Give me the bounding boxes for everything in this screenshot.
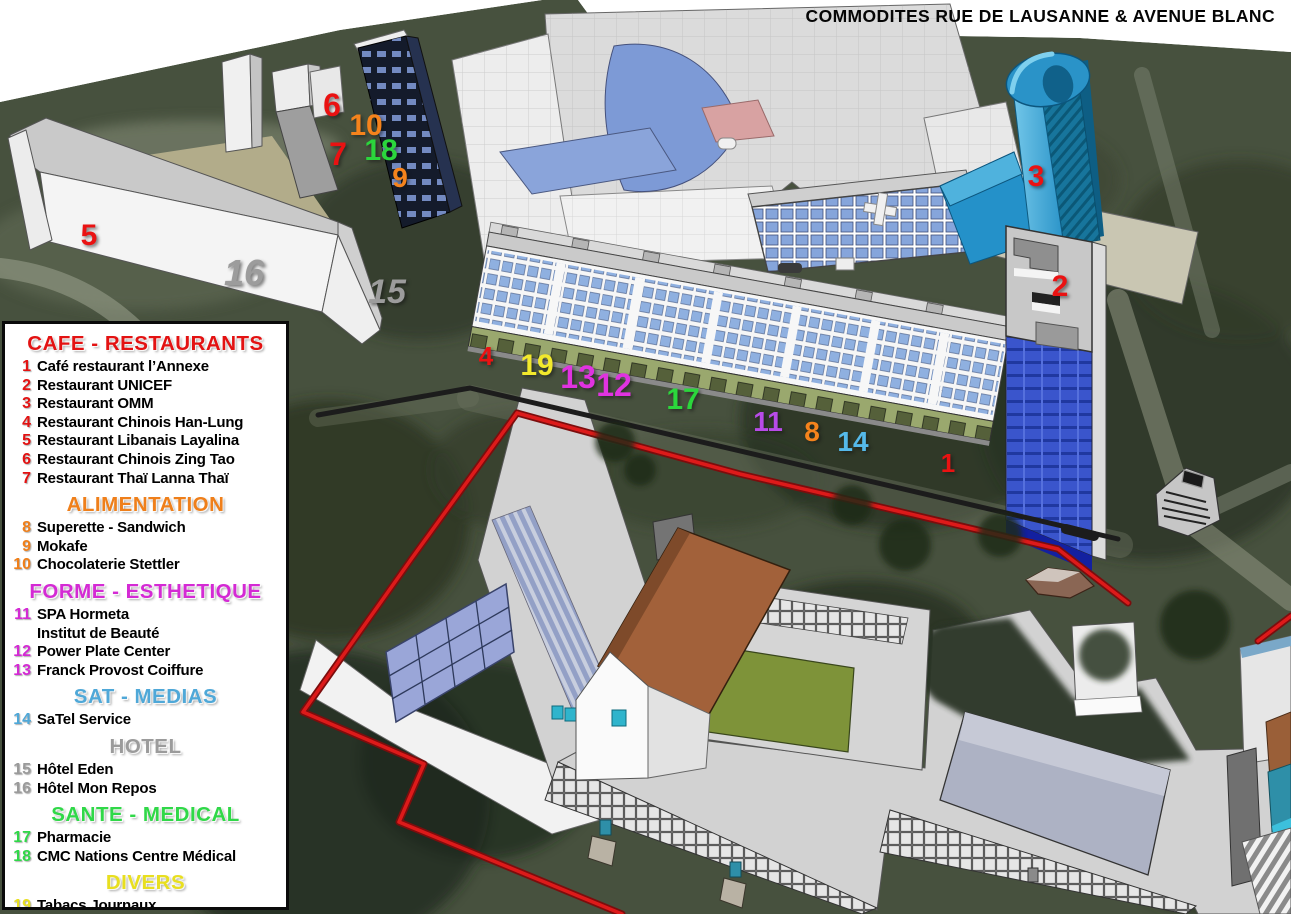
map-marker-9: 9	[392, 164, 408, 192]
legend-item-label: Power Plate Center	[37, 643, 170, 662]
legend-item-17: 17Pharmacie	[5, 829, 286, 848]
legend-item-2: 2Restaurant UNICEF	[5, 377, 286, 396]
legend-item-8: 8Superette - Sandwich	[5, 519, 286, 538]
legend-item-label: Tabacs Journaux	[37, 897, 156, 910]
map-marker-4: 4	[479, 343, 493, 369]
legend-item-number: 18	[5, 848, 31, 867]
legend-item-number: 2	[5, 377, 31, 396]
map-marker-5: 5	[81, 221, 98, 251]
page-title: COMMODITES RUE DE LAUSANNE & AVENUE BLAN…	[806, 6, 1275, 27]
legend-item-label: Restaurant OMM	[37, 395, 153, 414]
map-marker-1: 1	[941, 450, 955, 476]
legend-item-label: SPA Hormeta	[37, 606, 129, 625]
legend-header-5: SANTE - MEDICAL	[5, 803, 286, 827]
map-marker-14: 14	[837, 428, 868, 456]
legend-item-label: Restaurant Libanais Layalina	[37, 432, 239, 451]
legend-item-label: Chocolaterie Stettler	[37, 556, 180, 575]
legend-item-label: Restaurant Thaï Lanna Thaï	[37, 470, 229, 489]
map-marker-19: 19	[520, 351, 553, 381]
legend-item-5: 5Restaurant Libanais Layalina	[5, 432, 286, 451]
legend-item-18: 18CMC Nations Centre Médical	[5, 848, 286, 867]
legend-item-12: 12Power Plate Center	[5, 643, 286, 662]
legend-item-label: Hôtel Mon Repos	[37, 780, 157, 799]
legend-panel: CAFE - RESTAURANTS1Café restaurant l’Ann…	[2, 321, 289, 910]
legend-header-6: DIVERS	[5, 871, 286, 895]
legend-item-number: 12	[5, 643, 31, 662]
legend-item-11: 11SPA Hormeta	[5, 606, 286, 625]
legend-item-14: 14SaTel Service	[5, 711, 286, 730]
legend-item-number: 5	[5, 432, 31, 451]
legend-item-number: 8	[5, 519, 31, 538]
map-marker-16: 16	[224, 255, 264, 291]
legend-item-label: Hôtel Eden	[37, 761, 113, 780]
legend-item-number: 14	[5, 711, 31, 730]
legend-item-7: 7Restaurant Thaï Lanna Thaï	[5, 470, 286, 489]
map-marker-11: 11	[753, 408, 783, 436]
legend-item-number: 16	[5, 780, 31, 799]
legend-item-label: Café restaurant l’Annexe	[37, 358, 209, 377]
legend-item-label: CMC Nations Centre Médical	[37, 848, 236, 867]
legend-item-number: 17	[5, 829, 31, 848]
map-marker-8: 8	[804, 418, 820, 446]
legend-item-label: Mokafe	[37, 538, 87, 557]
legend-item-label: Pharmacie	[37, 829, 111, 848]
map-marker-2: 2	[1052, 272, 1069, 302]
map-marker-7: 7	[329, 138, 347, 170]
legend-header-1: ALIMENTATION	[5, 493, 286, 517]
legend-item-label: Restaurant UNICEF	[37, 377, 172, 396]
map-marker-13: 13	[560, 361, 596, 393]
legend-item-6: 6Restaurant Chinois Zing Tao	[5, 451, 286, 470]
map-marker-12: 12	[596, 369, 632, 401]
legend-item-1: 1Café restaurant l’Annexe	[5, 358, 286, 377]
legend-item-sublabel: Institut de Beauté	[37, 625, 159, 644]
legend-item-number: 13	[5, 662, 31, 681]
legend-item-3: 3Restaurant OMM	[5, 395, 286, 414]
legend-item-label: Restaurant Chinois Han-Lung	[37, 414, 243, 433]
legend-item-13: 13Franck Provost Coiffure	[5, 662, 286, 681]
house-door	[612, 710, 626, 726]
legend-item-number: 1	[5, 358, 31, 377]
legend-item-label: Restaurant Chinois Zing Tao	[37, 451, 235, 470]
legend-item-number-empty	[5, 625, 31, 644]
legend-item-number: 7	[5, 470, 31, 489]
legend-item-4: 4Restaurant Chinois Han-Lung	[5, 414, 286, 433]
legend-item-label: Superette - Sandwich	[37, 519, 186, 538]
map-marker-6: 6	[323, 89, 341, 121]
legend-item-number: 15	[5, 761, 31, 780]
legend-header-3: SAT - MEDIAS	[5, 685, 286, 709]
legend-item-16: 16Hôtel Mon Repos	[5, 780, 286, 799]
legend-item-10: 10Chocolaterie Stettler	[5, 556, 286, 575]
legend-item-number: 6	[5, 451, 31, 470]
legend-item-11-sub: Institut de Beauté	[5, 625, 286, 644]
legend-item-number: 4	[5, 414, 31, 433]
legend-item-number: 3	[5, 395, 31, 414]
legend-item-number: 10	[5, 556, 31, 575]
legend-item-number: 11	[5, 606, 31, 625]
legend-header-0: CAFE - RESTAURANTS	[5, 332, 286, 356]
legend-item-number: 19	[5, 897, 31, 910]
legend-item-19: 19Tabacs Journaux	[5, 897, 286, 910]
legend-item-label: SaTel Service	[37, 711, 131, 730]
legend-header-2: FORME - ESTHETIQUE	[5, 580, 286, 604]
commodites-map-screenshot: COMMODITES RUE DE LAUSANNE & AVENUE BLAN…	[0, 0, 1291, 914]
legend-sections: CAFE - RESTAURANTS1Café restaurant l’Ann…	[5, 332, 286, 910]
map-marker-18: 18	[364, 136, 397, 166]
legend-item-9: 9Mokafe	[5, 538, 286, 557]
legend-header-4: HOTEL	[5, 735, 286, 759]
legend-item-15: 15Hôtel Eden	[5, 761, 286, 780]
map-marker-3: 3	[1028, 162, 1045, 192]
map-marker-17: 17	[666, 385, 699, 415]
legend-item-label: Franck Provost Coiffure	[37, 662, 203, 681]
legend-item-number: 9	[5, 538, 31, 557]
map-marker-15: 15	[368, 275, 406, 309]
